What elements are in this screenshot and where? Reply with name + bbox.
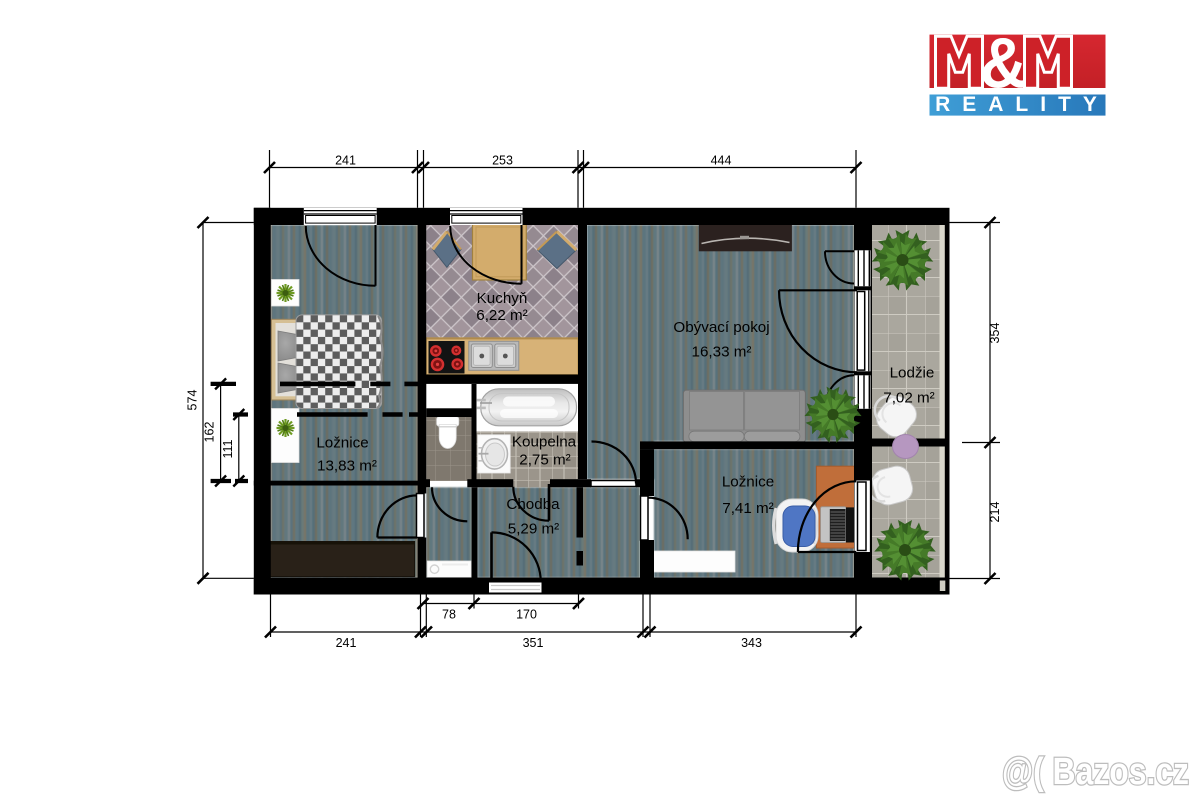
svg-text:214: 214 bbox=[988, 502, 1002, 523]
svg-text:Obývací pokoj: Obývací pokoj bbox=[673, 319, 769, 336]
svg-text:Chodba: Chodba bbox=[506, 496, 560, 513]
svg-text:111: 111 bbox=[221, 439, 235, 458]
svg-text:170: 170 bbox=[516, 608, 537, 622]
svg-text:6,22 m²: 6,22 m² bbox=[476, 307, 528, 324]
svg-text:Lodžie: Lodžie bbox=[890, 365, 935, 382]
svg-text:241: 241 bbox=[336, 636, 357, 650]
svg-text:2,75 m²: 2,75 m² bbox=[519, 452, 571, 469]
svg-text:253: 253 bbox=[492, 154, 513, 168]
svg-text:Ložnice: Ložnice bbox=[722, 474, 774, 491]
svg-text:354: 354 bbox=[988, 323, 1002, 344]
svg-text:343: 343 bbox=[741, 636, 762, 650]
svg-text:Koupelna: Koupelna bbox=[512, 434, 577, 451]
svg-text:78: 78 bbox=[442, 608, 456, 622]
svg-text:16,33 m²: 16,33 m² bbox=[692, 344, 752, 361]
svg-text:241: 241 bbox=[335, 154, 356, 168]
svg-text:162: 162 bbox=[203, 422, 217, 443]
svg-text:REALITY: REALITY bbox=[935, 93, 1109, 116]
svg-text:5,29 m²: 5,29 m² bbox=[508, 521, 560, 538]
svg-text:13,83 m²: 13,83 m² bbox=[317, 458, 377, 475]
svg-text:7,02 m²: 7,02 m² bbox=[883, 390, 935, 407]
svg-text:7,41 m²: 7,41 m² bbox=[722, 500, 774, 517]
svg-text:&: & bbox=[980, 23, 1028, 103]
svg-text:@( Bazos.cz: @( Bazos.cz bbox=[1002, 751, 1189, 793]
svg-text:574: 574 bbox=[186, 390, 200, 411]
svg-text:Kuchyň: Kuchyň bbox=[477, 290, 528, 307]
svg-text:444: 444 bbox=[711, 154, 732, 168]
svg-text:351: 351 bbox=[523, 636, 544, 650]
svg-text:Ložnice: Ložnice bbox=[316, 435, 368, 452]
